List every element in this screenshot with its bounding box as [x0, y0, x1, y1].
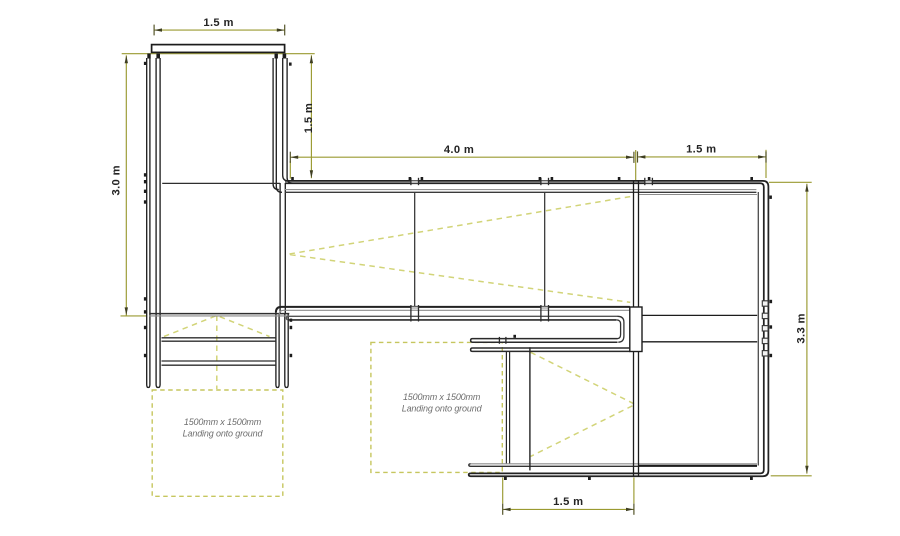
svg-text:1.5 m: 1.5 m [553, 496, 583, 508]
svg-text:1.5 m: 1.5 m [203, 17, 233, 29]
svg-text:1500mm x 1500mm: 1500mm x 1500mm [403, 392, 481, 402]
svg-text:4.0 m: 4.0 m [444, 144, 474, 156]
svg-text:Landing onto ground: Landing onto ground [183, 429, 264, 439]
svg-text:1.5 m: 1.5 m [303, 103, 315, 133]
svg-text:Landing onto ground: Landing onto ground [402, 404, 483, 414]
svg-text:3.3 m: 3.3 m [795, 313, 807, 343]
svg-text:1.5 m: 1.5 m [686, 143, 716, 155]
svg-text:3.0 m: 3.0 m [110, 165, 122, 195]
svg-text:1500mm x 1500mm: 1500mm x 1500mm [184, 417, 262, 427]
